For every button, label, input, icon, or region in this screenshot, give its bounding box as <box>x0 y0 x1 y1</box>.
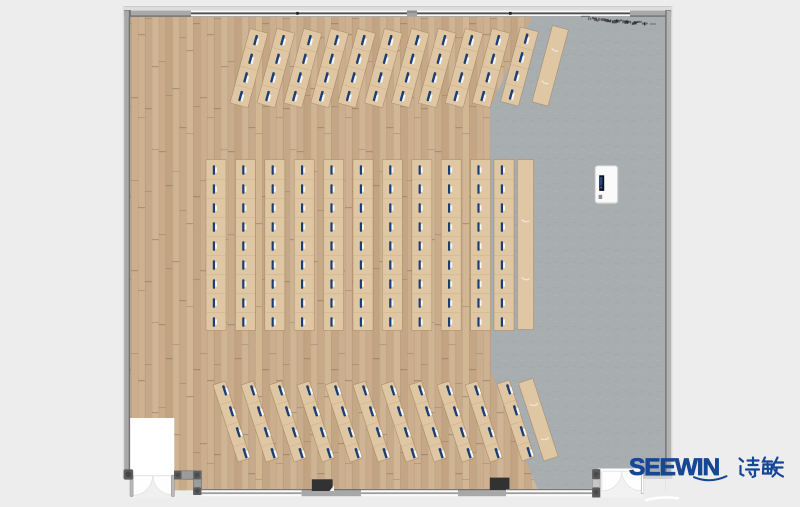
svg-text:SEEWIN: SEEWIN <box>629 454 719 481</box>
